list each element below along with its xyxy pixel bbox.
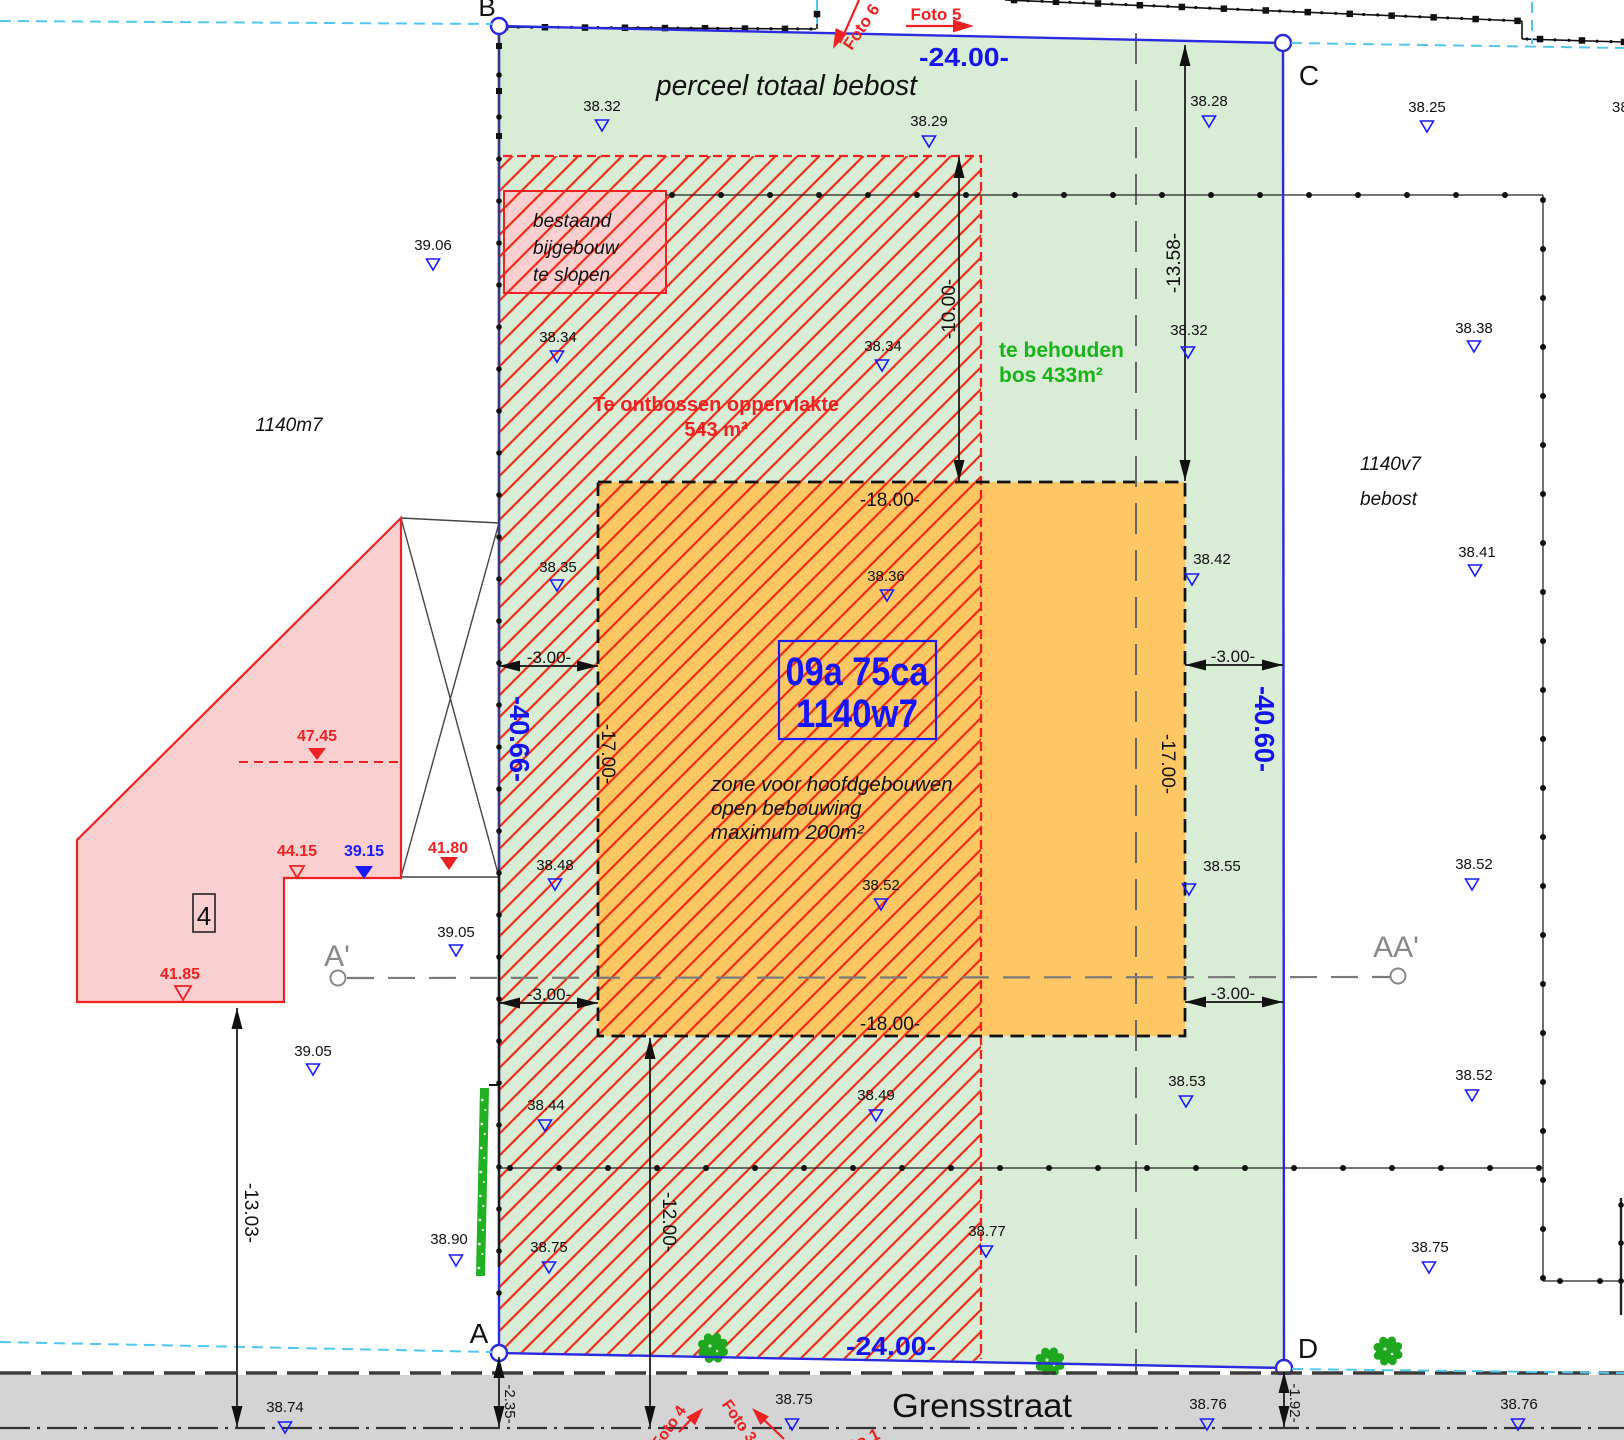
svg-text:38.44: 38.44 — [527, 1097, 565, 1114]
svg-text:38.77: 38.77 — [968, 1223, 1006, 1240]
svg-text:38.52: 38.52 — [1455, 1067, 1493, 1084]
svg-text:-24.00-: -24.00- — [919, 42, 1009, 72]
svg-text:38.41: 38.41 — [1458, 544, 1496, 561]
svg-text:-2.35-: -2.35- — [501, 1384, 518, 1423]
svg-text:38.53: 38.53 — [1168, 1073, 1206, 1090]
svg-text:39.06: 39.06 — [414, 237, 452, 254]
svg-text:1140m7: 1140m7 — [255, 415, 324, 436]
svg-text:A': A' — [324, 940, 350, 973]
svg-text:38.75: 38.75 — [530, 1239, 568, 1256]
svg-text:38.42: 38.42 — [1193, 551, 1231, 568]
svg-text:38.32: 38.32 — [1170, 322, 1208, 339]
svg-text:1140v7: 1140v7 — [1360, 454, 1422, 475]
svg-text:39.15: 39.15 — [344, 843, 384, 860]
svg-text:38.90: 38.90 — [430, 1231, 468, 1248]
svg-text:38.28: 38.28 — [1190, 93, 1228, 110]
svg-text:38.25: 38.25 — [1408, 99, 1446, 116]
svg-text:-3.00-: -3.00- — [527, 648, 571, 667]
svg-text:-18.00-: -18.00- — [860, 1014, 920, 1035]
svg-text:-13.58-: -13.58- — [1164, 233, 1185, 293]
svg-text:D: D — [1298, 1333, 1318, 1364]
svg-text:543 m²: 543 m² — [684, 419, 748, 441]
svg-text:38.34: 38.34 — [539, 329, 577, 346]
svg-text:-13.03-: -13.03- — [240, 1183, 261, 1243]
svg-text:zone voor hoofdgebouwen: zone voor hoofdgebouwen — [710, 773, 953, 796]
svg-text:38.52: 38.52 — [1455, 856, 1493, 873]
svg-text:te slopen: te slopen — [533, 265, 610, 286]
svg-text:38.74: 38.74 — [266, 1399, 304, 1416]
svg-text:09a 75ca: 09a 75ca — [786, 650, 930, 694]
svg-text:-40.66-: -40.66- — [504, 696, 535, 782]
svg-text:38.55: 38.55 — [1203, 858, 1241, 875]
svg-text:open bebouwing: open bebouwing — [711, 797, 862, 820]
svg-text:Te ontbossen oppervlakte: Te ontbossen oppervlakte — [593, 394, 839, 416]
svg-text:Grensstraat: Grensstraat — [892, 1387, 1072, 1424]
svg-text:bijgebouw: bijgebouw — [533, 238, 620, 259]
svg-text:44.15: 44.15 — [277, 843, 317, 860]
svg-text:te behouden: te behouden — [999, 339, 1124, 362]
svg-text:-17.00-: -17.00- — [597, 724, 618, 784]
svg-text:perceel totaal bebost: perceel totaal bebost — [655, 70, 919, 102]
svg-text:38.38: 38.38 — [1455, 320, 1493, 337]
svg-text:38.35: 38.35 — [539, 559, 577, 576]
svg-text:39.05: 39.05 — [294, 1043, 332, 1060]
svg-text:38.29: 38.29 — [910, 113, 948, 130]
svg-text:-17.00-: -17.00- — [1157, 734, 1178, 794]
svg-text:38.48: 38.48 — [536, 857, 574, 874]
svg-text:39.05: 39.05 — [437, 924, 475, 941]
svg-text:38.76: 38.76 — [1500, 1396, 1538, 1413]
svg-text:bos 433m²: bos 433m² — [999, 364, 1103, 387]
svg-text:38.75: 38.75 — [1411, 1239, 1449, 1256]
svg-text:-3.00-: -3.00- — [1211, 984, 1255, 1003]
svg-text:AA': AA' — [1373, 931, 1419, 964]
svg-text:38.2: 38.2 — [1612, 99, 1624, 116]
svg-text:A: A — [470, 1318, 489, 1349]
svg-text:bestaand: bestaand — [533, 211, 613, 232]
svg-text:-12.00-: -12.00- — [658, 1192, 679, 1252]
svg-text:38.34: 38.34 — [864, 338, 902, 355]
svg-text:-10.00-: -10.00- — [939, 279, 960, 339]
svg-text:38.52: 38.52 — [862, 877, 900, 894]
svg-text:38.32: 38.32 — [583, 98, 621, 115]
svg-text:-3.00-: -3.00- — [1211, 647, 1255, 666]
svg-text:-18.00-: -18.00- — [860, 490, 920, 511]
svg-text:47.45: 47.45 — [297, 728, 337, 745]
svg-text:38.36: 38.36 — [867, 568, 905, 585]
svg-text:B: B — [478, 0, 495, 22]
svg-text:-3.00-: -3.00- — [527, 985, 571, 1004]
svg-text:38.76: 38.76 — [1189, 1396, 1227, 1413]
svg-text:-1.92-: -1.92- — [1286, 1383, 1303, 1422]
svg-text:maximum 200m²: maximum 200m² — [711, 821, 865, 844]
svg-text:C: C — [1299, 60, 1319, 91]
svg-text:-40.60-: -40.60- — [1249, 686, 1280, 772]
svg-text:41.80: 41.80 — [428, 840, 468, 857]
svg-text:1140w7: 1140w7 — [796, 692, 918, 736]
svg-text:4: 4 — [197, 901, 211, 931]
svg-text:-24.00-: -24.00- — [846, 1331, 936, 1361]
svg-text:38.49: 38.49 — [857, 1087, 895, 1104]
svg-text:41.85: 41.85 — [160, 966, 200, 983]
svg-text:38.75: 38.75 — [775, 1391, 813, 1408]
svg-text:bebost: bebost — [1360, 489, 1418, 510]
